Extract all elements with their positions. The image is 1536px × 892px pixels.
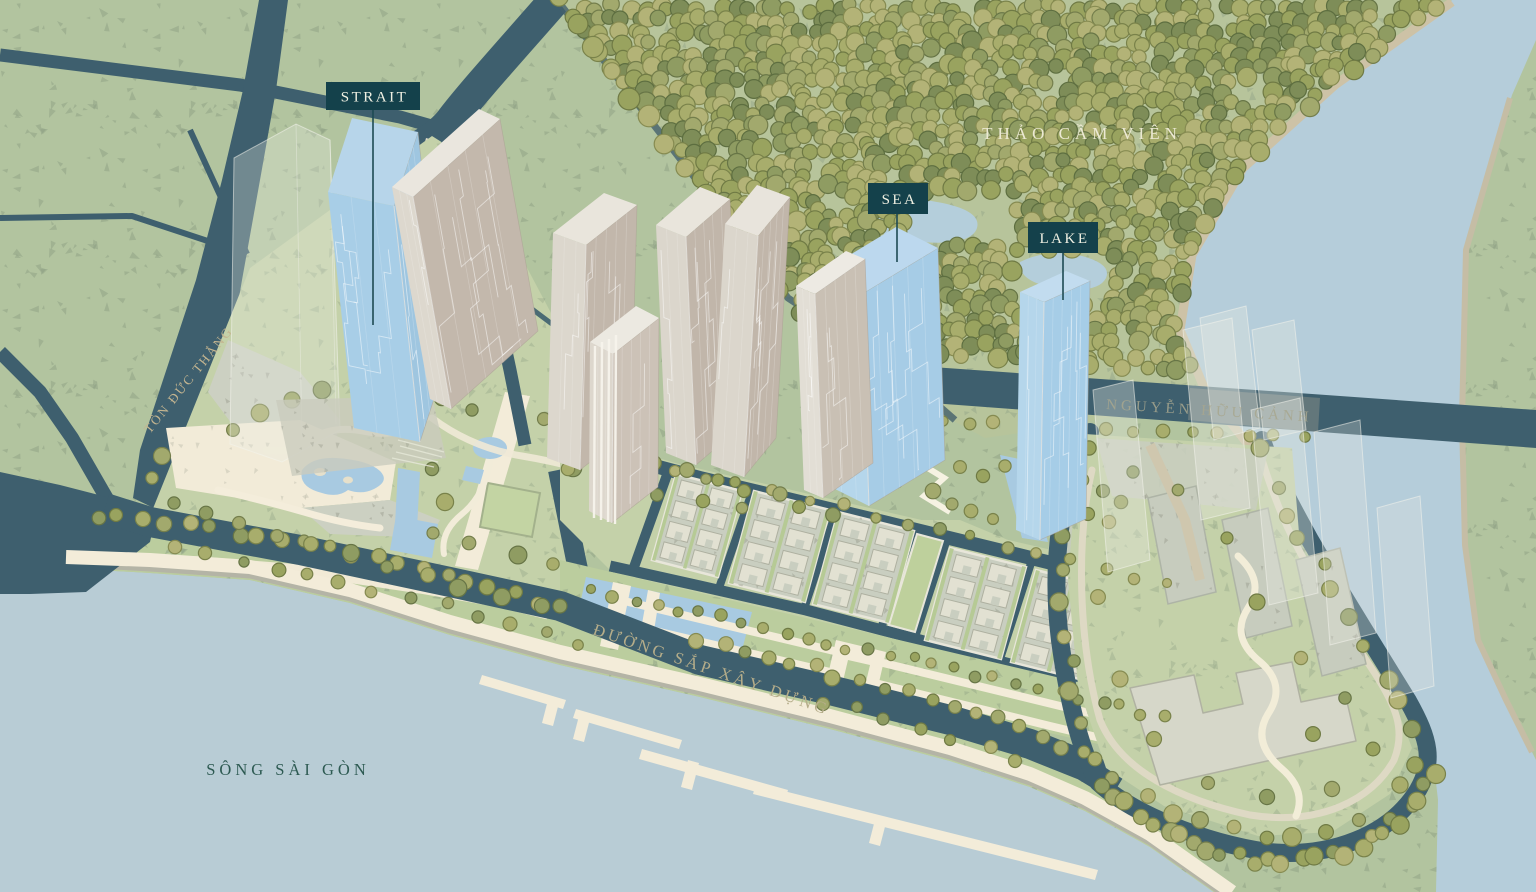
svg-text:SEA: SEA xyxy=(882,192,918,208)
svg-text:STRAIT: STRAIT xyxy=(341,89,409,105)
svg-text:SÔNG SÀI GÒN: SÔNG SÀI GÒN xyxy=(206,760,370,779)
svg-text:LAKE: LAKE xyxy=(1040,231,1090,247)
svg-text:THẢO CẦM VIÊN: THẢO CẦM VIÊN xyxy=(982,124,1182,143)
